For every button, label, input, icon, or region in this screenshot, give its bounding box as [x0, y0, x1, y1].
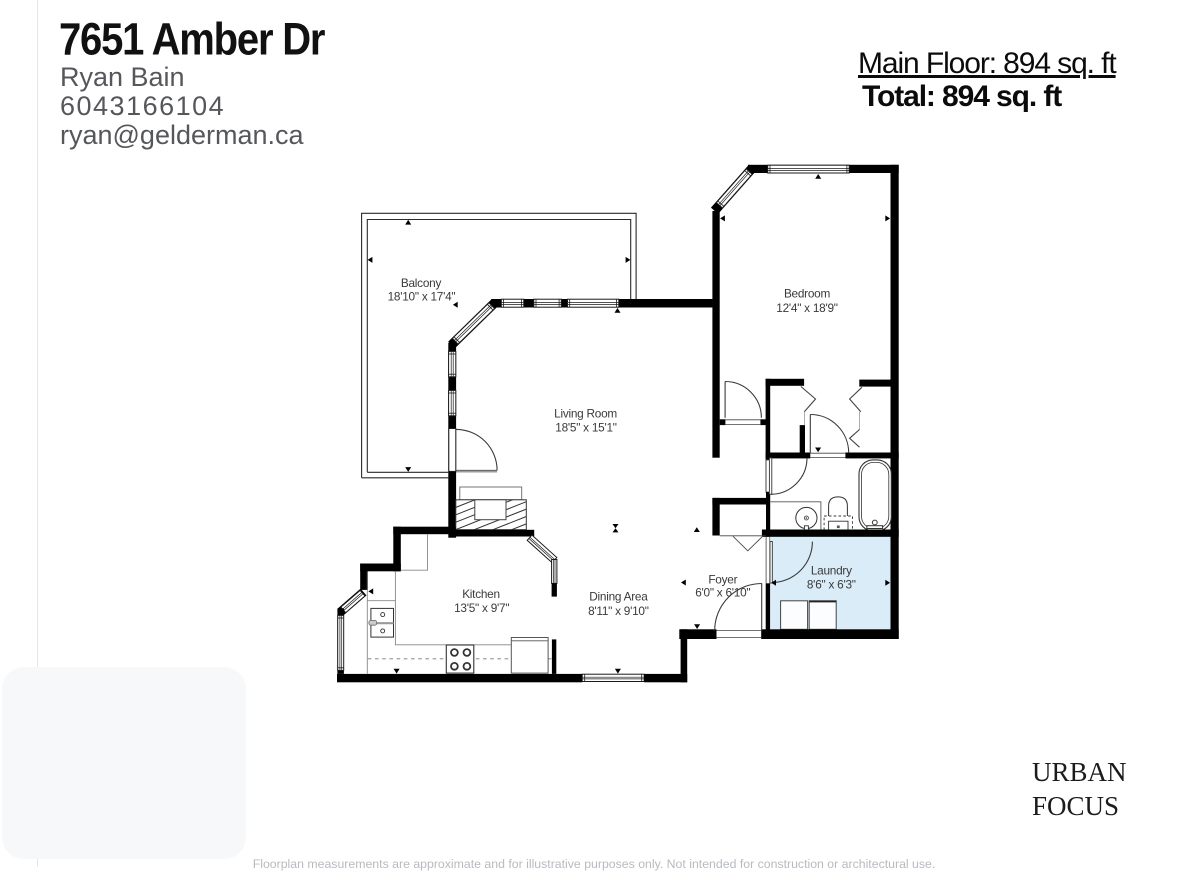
svg-text:Living Room: Living Room: [554, 406, 617, 420]
svg-text:13'5" x 9'7": 13'5" x 9'7": [454, 601, 509, 615]
svg-text:Laundry: Laundry: [811, 564, 852, 578]
svg-text:8'11" x 9'10": 8'11" x 9'10": [588, 604, 649, 618]
svg-text:8'6" x 6'3": 8'6" x 6'3": [807, 578, 856, 592]
svg-text:Kitchen: Kitchen: [462, 587, 500, 601]
svg-text:Dining Area: Dining Area: [589, 590, 648, 604]
svg-text:Bedroom: Bedroom: [784, 287, 831, 301]
svg-text:18'10" x 17'4": 18'10" x 17'4": [388, 290, 456, 304]
svg-text:Foyer: Foyer: [708, 573, 737, 587]
svg-text:18'5" x 15'1": 18'5" x 15'1": [555, 420, 617, 434]
svg-text:12'4" x 18'9": 12'4" x 18'9": [776, 301, 838, 315]
svg-text:Balcony: Balcony: [401, 276, 442, 290]
svg-text:6'0" x 6'10": 6'0" x 6'10": [695, 586, 750, 600]
